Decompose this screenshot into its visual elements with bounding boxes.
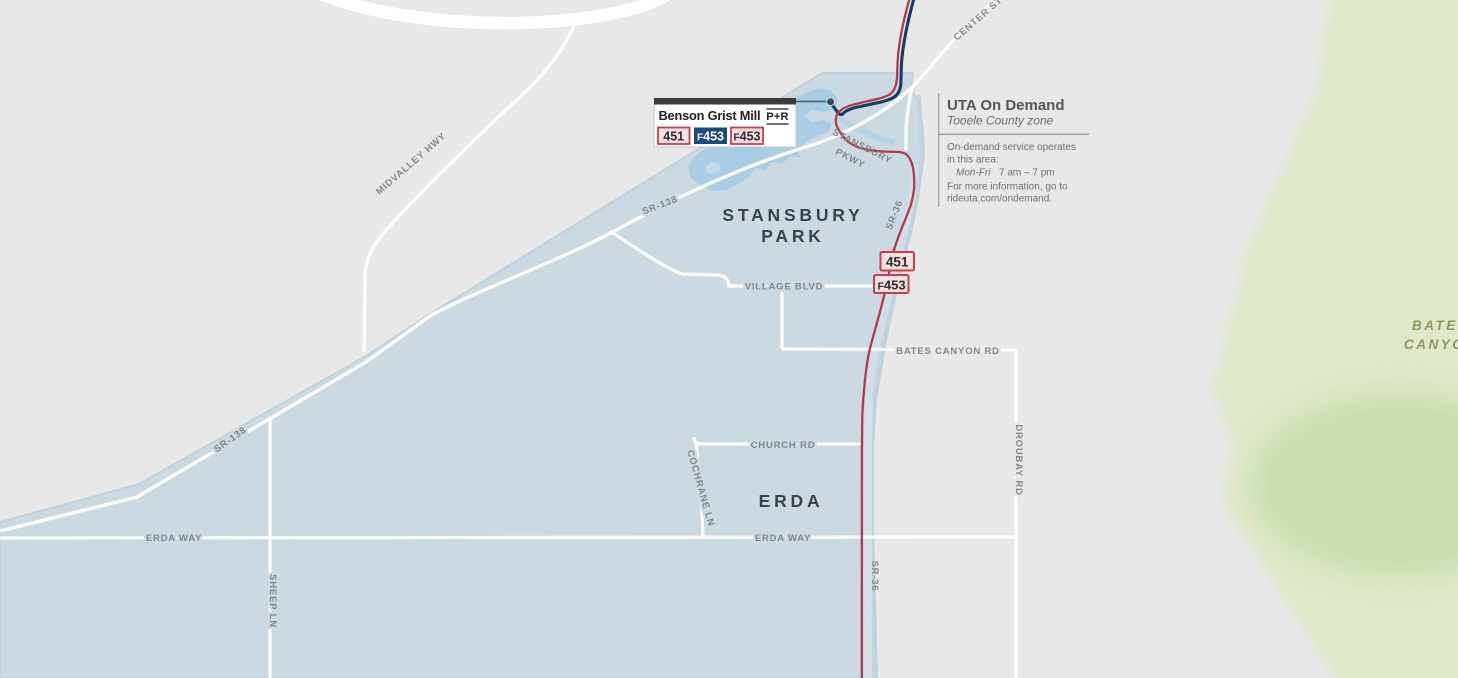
svg-text:in this area:: in this area: <box>947 155 999 166</box>
svg-text:ERDA WAY: ERDA WAY <box>755 533 811 544</box>
svg-text:PARK: PARK <box>761 226 825 246</box>
svg-text:Tooele County zone: Tooele County zone <box>947 114 1054 128</box>
svg-text:451: 451 <box>663 130 684 144</box>
svg-text:On-demand service operates: On-demand service operates <box>947 142 1076 153</box>
svg-text:SR-36: SR-36 <box>869 561 880 592</box>
svg-text:VILLAGE BLVD: VILLAGE BLVD <box>745 282 824 293</box>
svg-text:F453: F453 <box>734 130 761 144</box>
svg-text:BATES CANYON RD: BATES CANYON RD <box>896 346 1000 357</box>
svg-text:SHEEP LN: SHEEP LN <box>267 574 278 628</box>
svg-text:P+R: P+R <box>766 111 789 123</box>
svg-text:ERDA: ERDA <box>759 491 824 511</box>
svg-text:DROUBAY RD: DROUBAY RD <box>1013 424 1024 495</box>
svg-text:BATES: BATES <box>1412 318 1458 333</box>
svg-text:451: 451 <box>886 255 909 270</box>
svg-text:Mon-Fri7 am – 7 pm: Mon-Fri7 am – 7 pm <box>956 168 1055 179</box>
svg-text:CANYON: CANYON <box>1404 337 1458 352</box>
svg-text:F453: F453 <box>877 278 905 293</box>
svg-text:F453: F453 <box>697 130 724 144</box>
svg-text:STANSBURY: STANSBURY <box>722 205 863 225</box>
svg-text:Benson Grist Mill: Benson Grist Mill <box>659 108 761 123</box>
svg-text:UTA On Demand: UTA On Demand <box>947 97 1065 114</box>
svg-text:CHURCH RD: CHURCH RD <box>751 440 816 451</box>
svg-text:ERDA WAY: ERDA WAY <box>146 533 202 544</box>
svg-text:rideuta.com/ondemand.: rideuta.com/ondemand. <box>947 194 1052 205</box>
svg-text:For more information, go to: For more information, go to <box>947 182 1068 193</box>
